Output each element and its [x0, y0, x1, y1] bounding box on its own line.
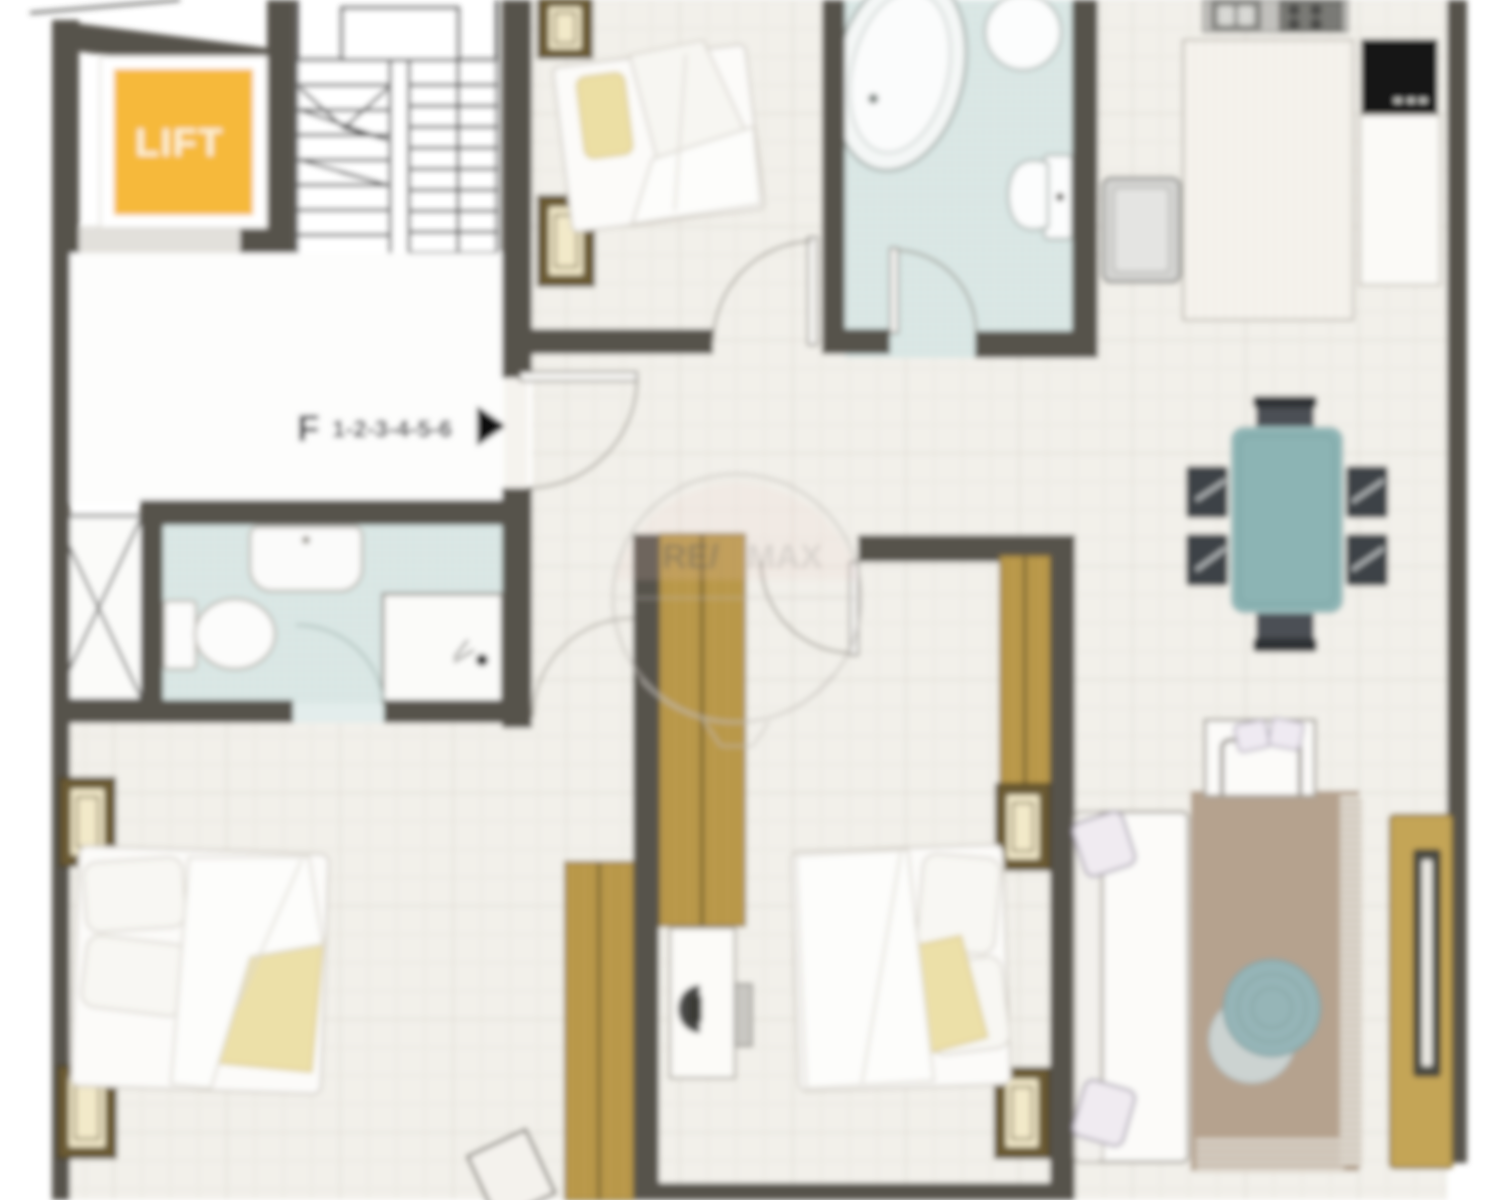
svg-text:F: F — [297, 408, 320, 449]
svg-text:MAX: MAX — [747, 538, 823, 576]
svg-text:RE/: RE/ — [662, 538, 719, 576]
svg-text:LIFT: LIFT — [135, 121, 223, 165]
svg-text:1-2-3-4-5-6: 1-2-3-4-5-6 — [332, 416, 452, 443]
